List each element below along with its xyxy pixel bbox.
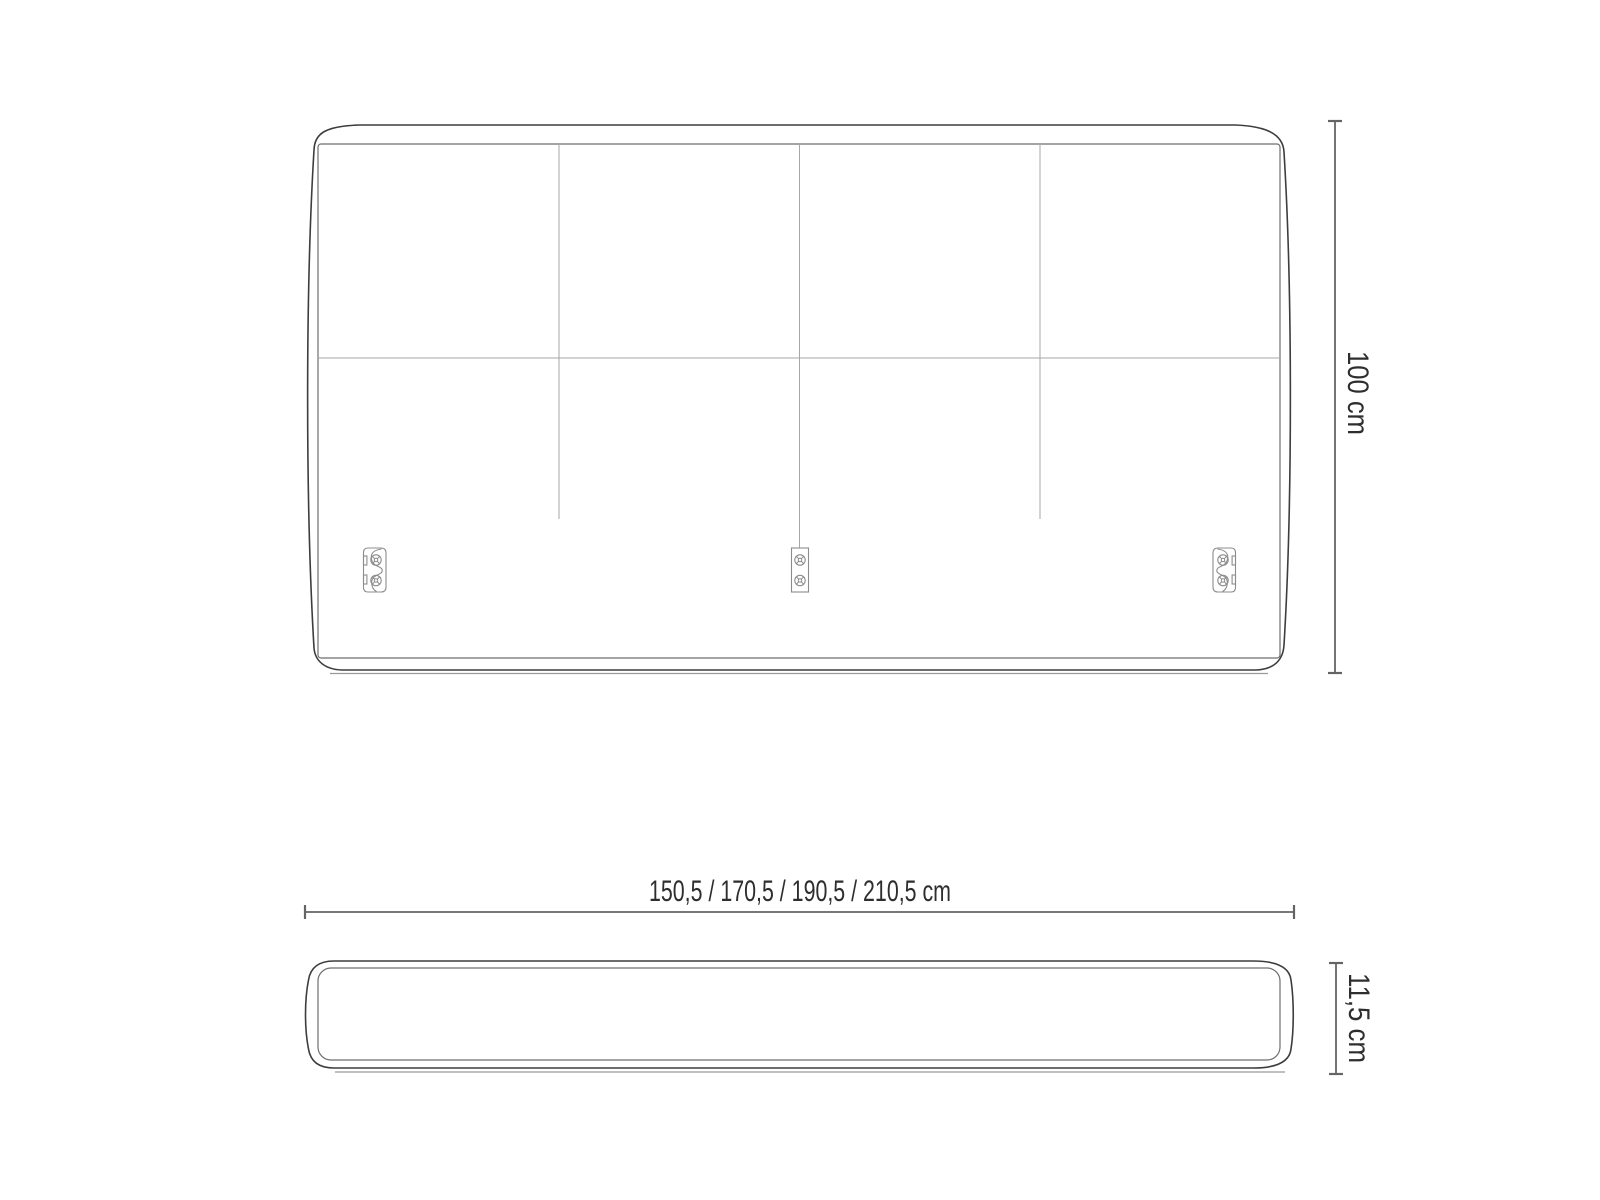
screw-icon: [795, 555, 805, 565]
depth-dimension-label: 11,5 cm: [1342, 973, 1375, 1063]
bracket-left: [364, 548, 387, 592]
height-dimension: 100 cm: [1328, 121, 1374, 673]
drawing-canvas: 100 cm 150,5 / 170,5 / 190,5 / 210,5 cm …: [0, 0, 1600, 1200]
width-dimension: 150,5 / 170,5 / 190,5 / 210,5 cm: [305, 875, 1294, 919]
top-panel-face: [318, 968, 1280, 1060]
top-view: [306, 961, 1294, 1072]
headboard-technical-drawing: 100 cm 150,5 / 170,5 / 190,5 / 210,5 cm …: [0, 0, 1600, 1200]
height-dimension-label: 100 cm: [1341, 351, 1374, 435]
front-view: [308, 125, 1291, 674]
top-outline: [306, 961, 1294, 1068]
bracket-center: [792, 548, 809, 592]
width-dimension-label: 150,5 / 170,5 / 190,5 / 210,5 cm: [649, 875, 951, 908]
screw-icon: [795, 575, 805, 585]
depth-dimension: 11,5 cm: [1329, 963, 1375, 1074]
bracket-right: [1213, 548, 1236, 592]
